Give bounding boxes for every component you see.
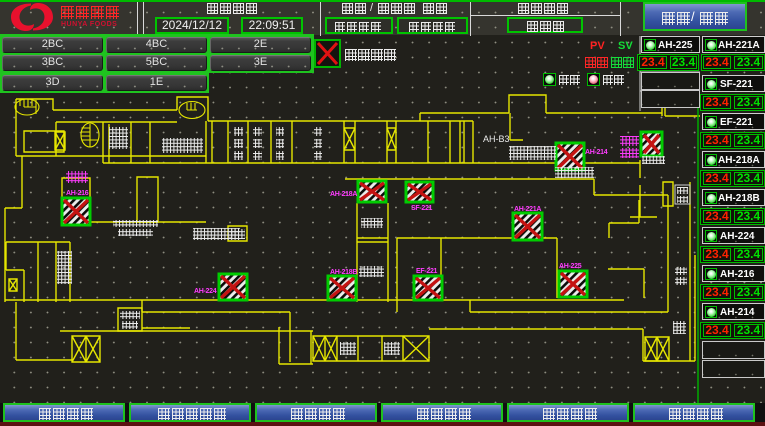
svg-text:AH-221A: AH-221A: [514, 206, 541, 213]
svg-text:AH-218B: AH-218B: [330, 269, 357, 276]
svg-text:AH-224: AH-224: [194, 288, 217, 295]
svg-text:SF-221: SF-221: [411, 205, 433, 212]
svg-text:AH-214: AH-214: [585, 149, 608, 156]
svg-text:AH-B3: AH-B3: [483, 134, 510, 144]
svg-text:AH-225: AH-225: [559, 263, 582, 270]
svg-text:AH-216: AH-216: [66, 190, 89, 197]
svg-text:AH-218A: AH-218A: [330, 191, 357, 198]
svg-text:EF-221: EF-221: [416, 268, 438, 275]
